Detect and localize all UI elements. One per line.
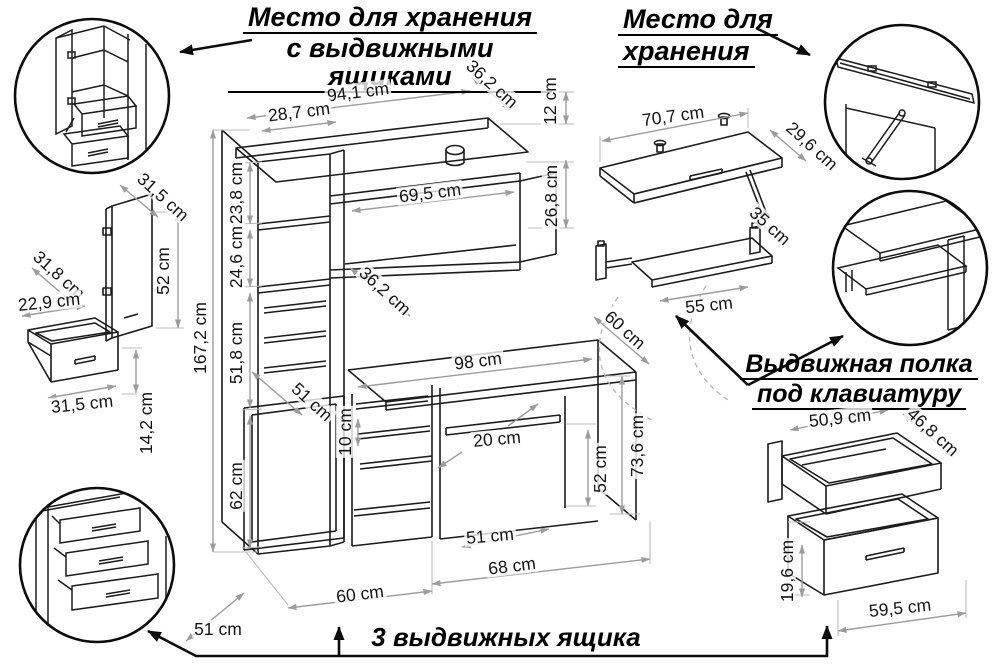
dim-main-upper-section: 23,8 cm xyxy=(227,160,245,226)
door-panel-drawing xyxy=(103,194,152,341)
title-line: 3 выдвижных ящика xyxy=(371,624,640,651)
dim-main-shelf-depth: 20 cm xyxy=(470,428,523,451)
dim-main-floor-depth: 51 cm xyxy=(192,620,244,638)
dim-small-drawer-height: 14,2 cm xyxy=(137,390,155,456)
dim-main-knee-depth: 51 cm xyxy=(463,525,516,548)
title-line: Выдвижная полка xyxy=(740,351,977,380)
dim-main-drawer-spacing: 10 cm xyxy=(336,406,354,458)
detail-circle-liftup-door xyxy=(825,25,979,186)
dim-main-middle-section: 24,6 cm xyxy=(227,224,245,290)
dim-main-top-gap: 12 cm xyxy=(541,75,559,127)
detail-circle-keyboard-shelf xyxy=(833,191,987,345)
title-three-drawers: 3 выдвижных ящика xyxy=(360,622,652,653)
dim-main-niche-height: 26,8 cm xyxy=(542,163,560,229)
title-keyboard-shelf: Выдвижная полка под клавиатуру xyxy=(726,350,992,410)
title-line: Место для xyxy=(618,5,778,36)
title-line: хранения xyxy=(618,37,755,68)
dim-main-desk-height: 73,6 cm xyxy=(628,413,646,479)
title-storage-with-drawers: Место для хранения с выдвижными ящиками xyxy=(228,2,552,93)
dim-main-desk-to-niche: 51,8 cm xyxy=(227,320,245,386)
dim-large-drawer-height: 19,6 cm xyxy=(778,538,796,604)
small-drawer-drawing xyxy=(28,318,118,382)
detail-circle-three-drawers xyxy=(20,488,174,642)
dim-main-total-height: 167,2 cm xyxy=(191,300,209,376)
dim-main-knee-height: 52 cm xyxy=(591,443,609,495)
dim-door-height: 52 cm xyxy=(154,245,172,297)
detail-circle-cabinet xyxy=(15,19,169,173)
keyboard-shelf-drawing xyxy=(596,223,772,287)
title-line: Место для хранения xyxy=(243,3,537,34)
dim-main-cabinet-height: 62 cm xyxy=(227,460,245,512)
furniture-dimension-diagram: Место для хранения с выдвижными ящиками … xyxy=(0,0,1000,667)
title-storage: Место для хранения xyxy=(618,4,788,68)
